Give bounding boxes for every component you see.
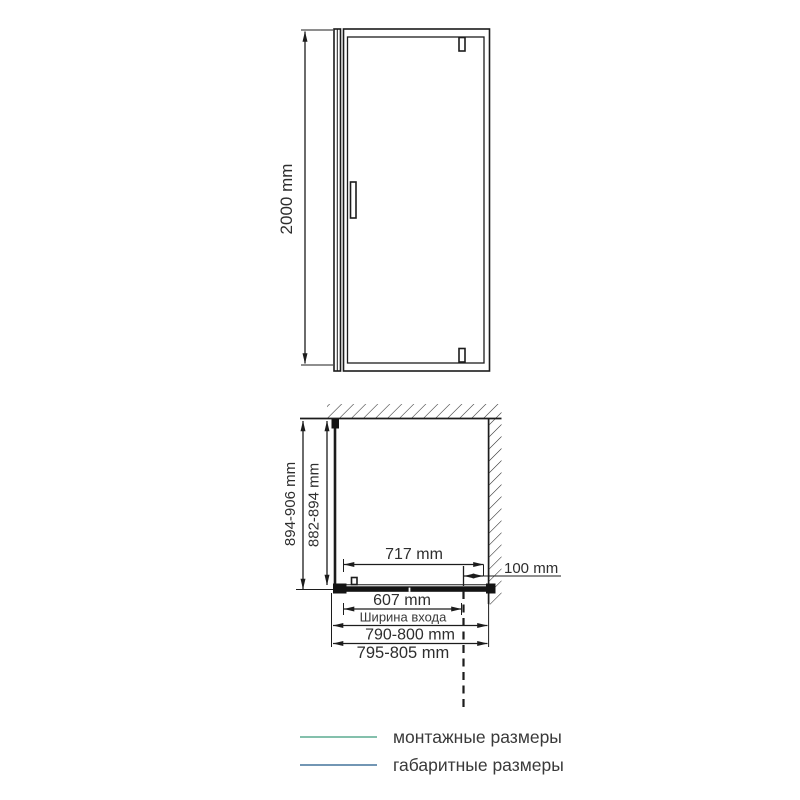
legend: монтажные размеры габаритные размеры [300,727,564,775]
overall-depth-label: 894-906 mm [282,462,299,546]
side-panel-wall-profile [332,419,340,429]
front-glass-band [333,586,495,592]
hinge-top [459,38,465,52]
plan-door-handle [352,578,358,585]
wall-distance-label: 100 mm [504,560,558,577]
height-dimension-label: 2000 mm [277,164,296,235]
overall-width-label: 795-805 mm [357,644,450,662]
mounting-depth-label: 882-894 mm [306,463,323,547]
plan-view: 894-906 mm 882-894 mm 717 mm 100 mm 607 … [282,404,561,712]
glass-width-label: 717 mm [385,546,443,563]
legend-mounting-label: монтажные размеры [393,727,562,747]
door-frame-outer [344,29,490,371]
legend-overall-label: габаритные размеры [393,755,564,775]
shower-door-dimension-drawing: 2000 mm 894-906 mm 882-894 mm 717 mm [0,0,800,800]
top-wall-hatch [327,404,502,419]
front-band-left-profile [333,584,347,594]
front-view: 2000 mm [277,29,490,371]
entrance-width-caption: Ширина входа [360,610,447,625]
technical-drawing-canvas: 2000 mm 894-906 mm 882-894 mm 717 mm [0,0,800,800]
hinge-bottom [459,349,465,363]
front-band-right-profile [486,584,496,594]
door-handle [351,182,357,218]
mounting-width-label: 790-800 mm [365,627,455,644]
right-wall-hatch [490,419,502,605]
entrance-width-label: 607 mm [373,592,431,609]
